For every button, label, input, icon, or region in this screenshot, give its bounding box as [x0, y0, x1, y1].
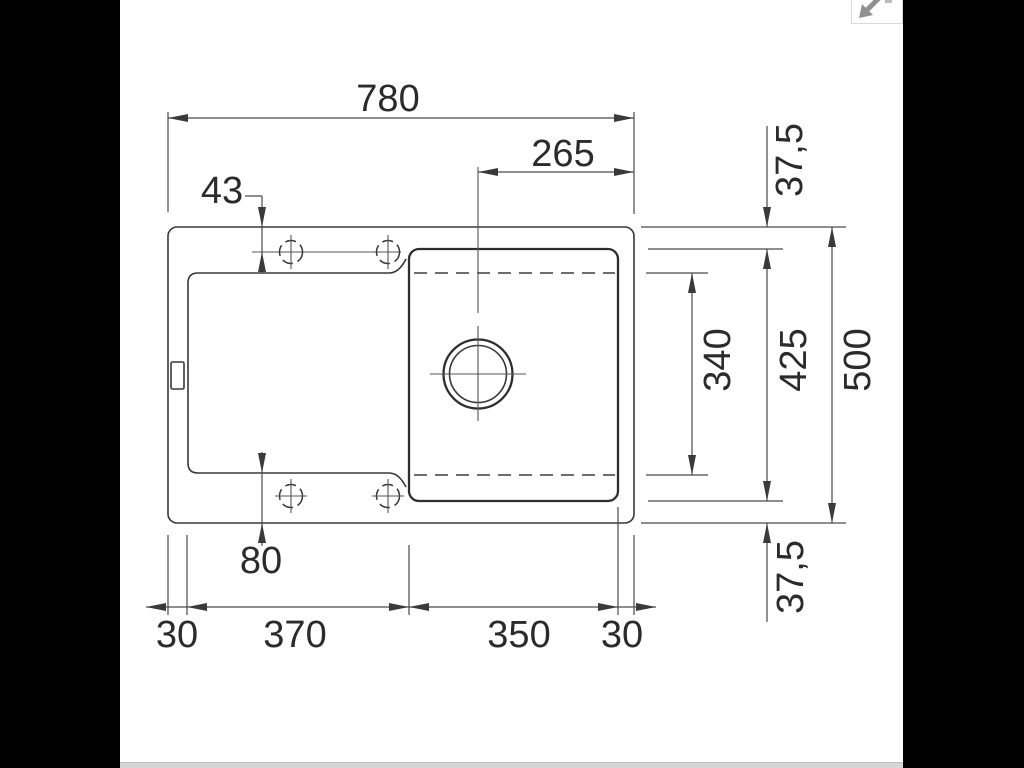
arrow-down-left-icon	[852, 0, 902, 22]
overflow-slot	[171, 362, 184, 389]
dim-label-500: 500	[837, 328, 879, 391]
dim-label-30-right: 30	[601, 614, 643, 656]
dim-label-780: 780	[356, 78, 419, 120]
dim-label-80: 80	[240, 540, 282, 582]
dim-500: 500	[828, 227, 879, 523]
dim-label-350: 350	[487, 614, 550, 656]
sink-outline	[168, 227, 634, 523]
dim-label-43: 43	[201, 170, 243, 212]
sink-technical-drawing: 780 265 43 80	[120, 0, 903, 768]
dim-425: 425	[763, 249, 815, 501]
drainboard-inner-edge	[188, 259, 406, 487]
dim-80: 80	[240, 452, 282, 582]
screenshot-stage: 780 265 43 80	[0, 0, 1024, 768]
left-letterbox	[0, 0, 120, 768]
dim-label-370: 370	[263, 614, 326, 656]
dim-37-5-top: 37,5	[763, 123, 811, 227]
dim-label-425: 425	[773, 328, 815, 391]
dim-37-5-bottom: 37,5	[763, 523, 812, 622]
dim-label-37-5-bottom: 37,5	[770, 540, 812, 614]
dim-label-265: 265	[531, 133, 594, 175]
dim-340: 340	[688, 273, 739, 475]
drawing-panel: 780 265 43 80	[120, 0, 903, 768]
dim-43: 43	[201, 170, 266, 273]
right-letterbox	[903, 0, 1024, 768]
bottom-edge-bar	[120, 762, 903, 768]
dim-label-340: 340	[697, 328, 739, 391]
collapse-button[interactable]	[851, 0, 903, 24]
dim-bottom-chain: 30 370 350 30	[146, 507, 656, 656]
tap-holes	[252, 235, 404, 513]
dim-label-30-left: 30	[156, 614, 198, 656]
right-extension-lines	[641, 227, 846, 523]
dim-265: 265	[478, 133, 634, 176]
dim-label-37-5-top: 37,5	[769, 123, 811, 197]
